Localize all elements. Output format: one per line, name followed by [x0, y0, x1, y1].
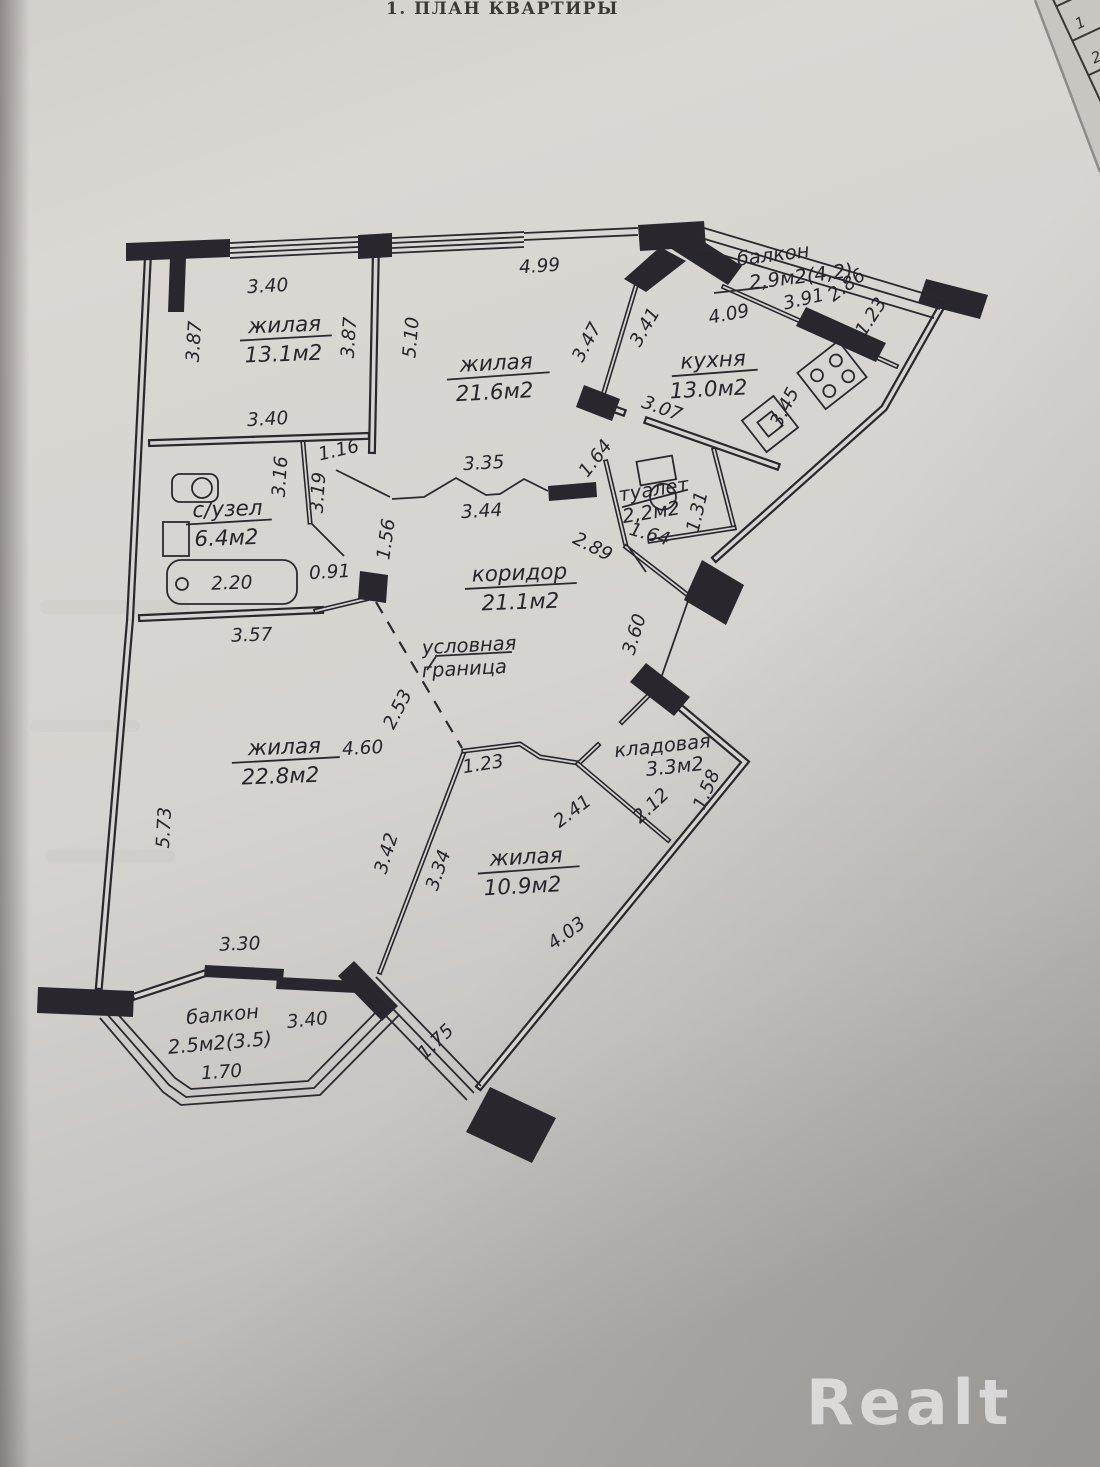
- dim: 3.40: [247, 275, 289, 298]
- dim: 4.99: [518, 255, 561, 279]
- room-area: 10.9м2: [483, 872, 562, 901]
- room-name: жилая: [246, 312, 321, 340]
- dim: 4.60: [342, 737, 384, 760]
- dim: 3.30: [219, 933, 261, 955]
- dim: 2.20: [211, 572, 253, 594]
- photographed-floor-plan-sheet: 1. ПЛАН КВАРТИРЫ 1 2 3 4: [0, 0, 1100, 1467]
- boundary-word-2: граница: [421, 655, 507, 682]
- room-area: 22.8м2: [241, 763, 320, 791]
- dim: 5.10: [399, 316, 424, 359]
- dim: 3.16: [269, 455, 293, 498]
- realt-watermark: Realt: [806, 1366, 1014, 1439]
- dim: 5.73: [153, 807, 176, 849]
- room-area: 13.0м2: [669, 375, 748, 404]
- floor-plan-drawing: 1. ПЛАН КВАРТИРЫ 1 2 3 4: [0, 0, 1100, 1467]
- room-area: 6.4м2: [194, 525, 259, 552]
- dim: 3.35: [463, 452, 505, 475]
- dim: 3.87: [183, 320, 207, 363]
- room-area: 21.6м2: [455, 378, 534, 407]
- dim: 3.40: [247, 408, 289, 431]
- paper-corner-shadow: [0, 0, 1100, 1467]
- dim: 3.57: [231, 624, 273, 646]
- room-name: с/узел: [192, 496, 263, 523]
- room-name: жилая: [246, 734, 321, 762]
- dim: 3.40: [286, 1008, 329, 1033]
- room-area: 13.1м2: [244, 341, 323, 369]
- conditional-boundary-label: условная граница: [420, 631, 518, 682]
- dim: 0.91: [309, 561, 351, 584]
- dim: 1.70: [200, 1061, 243, 1085]
- room-area: 21.1м2: [481, 589, 560, 617]
- dim: 3.44: [461, 500, 503, 523]
- dim: 3.87: [338, 316, 362, 359]
- page-title: 1. ПЛАН КВАРТИРЫ: [386, 0, 619, 19]
- dim: 3.19: [307, 471, 331, 514]
